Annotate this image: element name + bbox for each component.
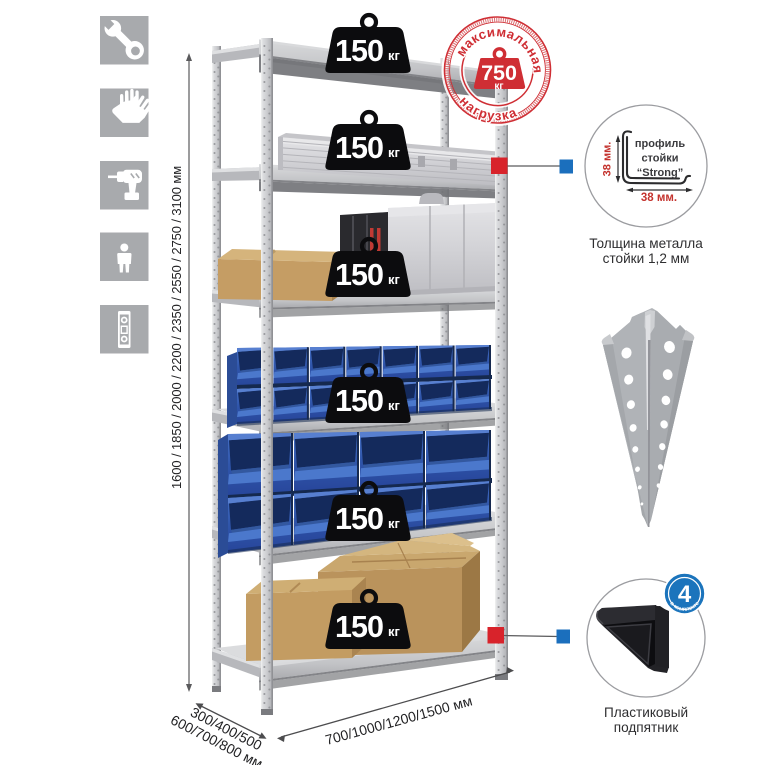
svg-text:38 мм.: 38 мм. bbox=[641, 192, 677, 204]
svg-text:кг: кг bbox=[388, 145, 401, 160]
svg-text:кг: кг bbox=[494, 81, 503, 92]
svg-text:кг: кг bbox=[388, 272, 401, 287]
svg-text:150: 150 bbox=[335, 34, 383, 68]
svg-text:150: 150 bbox=[335, 258, 383, 292]
svg-text:150: 150 bbox=[335, 384, 383, 418]
svg-text:кг: кг bbox=[388, 48, 401, 63]
svg-text:подпятник: подпятник bbox=[614, 720, 680, 735]
svg-text:стойки: стойки bbox=[641, 153, 678, 165]
svg-text:150: 150 bbox=[335, 131, 383, 165]
svg-text:профиль: профиль bbox=[635, 138, 685, 150]
svg-text:стойки 1,2 мм: стойки 1,2 мм bbox=[603, 251, 690, 266]
svg-text:150: 150 bbox=[335, 610, 383, 644]
svg-text:1600 / 1850 / 2000 / 2200 / 23: 1600 / 1850 / 2000 / 2200 / 2350 / 2550 … bbox=[169, 166, 184, 489]
svg-text:кг: кг bbox=[388, 624, 401, 639]
svg-text:кг: кг bbox=[388, 516, 401, 531]
svg-text:Пластиковый: Пластиковый bbox=[604, 705, 688, 720]
svg-text:4: 4 bbox=[678, 581, 692, 608]
svg-text:“Strong”: “Strong” bbox=[637, 167, 683, 179]
svg-text:150: 150 bbox=[335, 502, 383, 536]
svg-text:Толщина металла: Толщина металла bbox=[589, 236, 703, 251]
svg-text:кг: кг bbox=[388, 398, 401, 413]
svg-text:38 мм.: 38 мм. bbox=[602, 142, 614, 177]
